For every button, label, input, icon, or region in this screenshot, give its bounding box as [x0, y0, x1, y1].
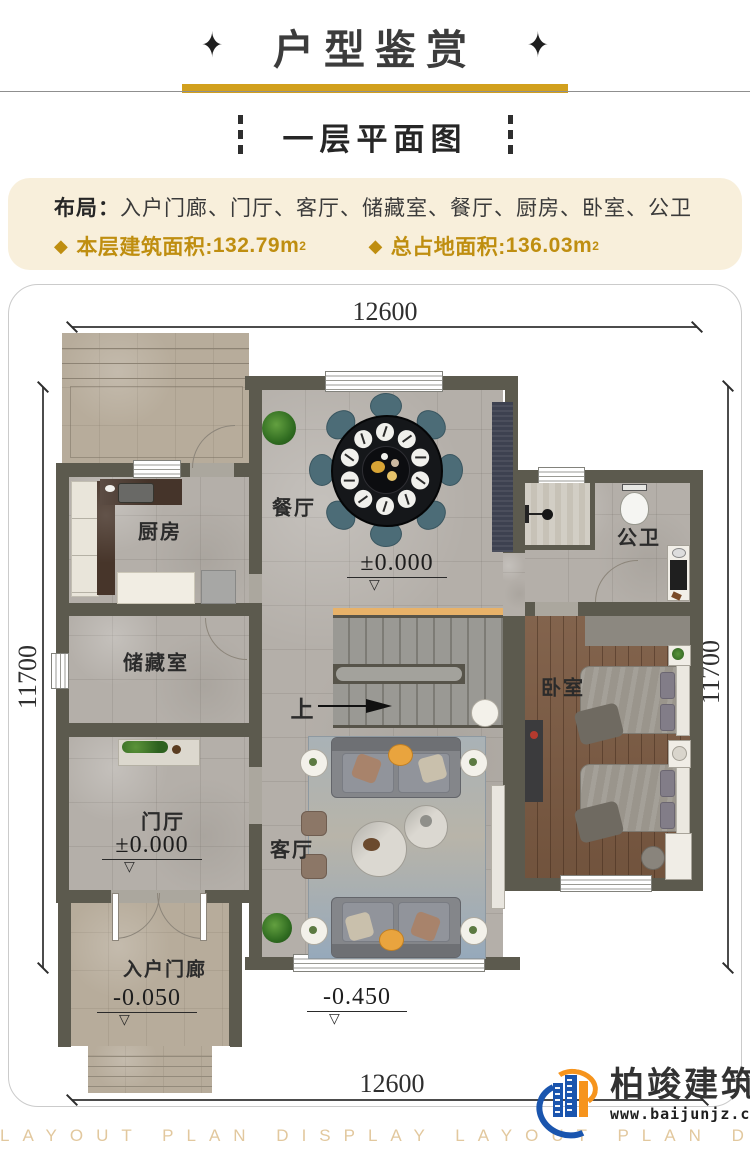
room-label-kitchen: 厨房 — [138, 516, 182, 545]
stairs-arrow-head — [366, 699, 392, 713]
layout-label: 布局： — [54, 197, 120, 220]
living-tv-cabinet — [491, 785, 505, 909]
toilet-tank — [622, 484, 647, 491]
stairs-up-label: 上 — [291, 690, 316, 724]
bed-headboard — [676, 762, 690, 834]
plate — [376, 497, 394, 515]
diamond-icon: ◆ — [54, 236, 68, 257]
brand-logo-icon — [536, 1068, 602, 1130]
elevation-value: ±0.000 — [102, 833, 202, 857]
dining-window — [325, 371, 443, 392]
storage-window — [51, 653, 69, 689]
elevation-value: ±0.000 — [347, 551, 447, 575]
room-label-bath: 公卫 — [617, 522, 661, 551]
elevation-value: -0.450 — [307, 985, 407, 1009]
floor-area-label: 本层建筑面积: — [76, 231, 213, 261]
cabinet-decor — [530, 731, 538, 739]
logo-building — [579, 1081, 588, 1117]
dim-line-left — [42, 387, 44, 968]
porch-wall — [58, 903, 71, 1023]
nightstand-plant — [672, 648, 684, 660]
step-line — [88, 1066, 212, 1067]
bath-window — [538, 467, 585, 484]
room-label-storage: 储藏室 — [123, 647, 189, 676]
dish — [381, 453, 388, 460]
dim-bottom: 12600 — [360, 1069, 425, 1099]
layout-info-box: 布局：入户门廊、门厅、客厅、储藏室、餐厅、厨房、卧室、公卫 ◆ 本层建筑面积:1… — [8, 178, 742, 270]
brand-name: 柏竣建筑 — [610, 1068, 750, 1102]
bed-headboard — [676, 664, 690, 736]
subtitle-dash-left — [238, 115, 243, 159]
porch-wall — [229, 903, 242, 1023]
step-line — [88, 1076, 212, 1077]
dining-feature-wall — [492, 402, 513, 552]
kitchen-sink — [118, 483, 154, 503]
wall — [249, 376, 262, 970]
nightstand-decor — [672, 746, 687, 761]
room-label-dining: 餐厅 — [272, 492, 316, 521]
ottoman — [301, 811, 327, 836]
wall — [56, 890, 111, 903]
layout-line: 布局：入户门廊、门厅、客厅、储藏室、餐厅、厨房、卧室、公卫 — [54, 192, 742, 222]
plant — [262, 913, 292, 943]
dim-left: 11700 — [13, 645, 43, 709]
wall — [56, 723, 262, 737]
dish — [371, 461, 385, 473]
stair-landing-strip — [333, 608, 503, 615]
brand-logo: 柏竣建筑 www.baijunjz.com — [536, 1068, 750, 1130]
room-label-foyer: 门厅 — [141, 806, 185, 835]
elevation-triangle-icon: ▽ — [307, 1012, 407, 1027]
kitchen-cabinets — [71, 481, 99, 597]
side-table — [460, 749, 488, 777]
bed — [580, 664, 690, 736]
bed-pillow — [660, 802, 675, 829]
sparkle-icon: ✦ — [201, 26, 223, 67]
elevation-outside: -0.450 ▽ — [307, 985, 407, 1028]
door-threshold — [249, 767, 262, 824]
tea-table — [471, 699, 499, 727]
coffee-table — [351, 821, 407, 877]
dim-line-right — [727, 386, 729, 968]
page-header: ✦ 户型鉴赏 ✦ — [0, 16, 750, 76]
shower-valve — [525, 505, 529, 523]
elevation-triangle-icon: ▽ — [347, 578, 447, 593]
room-label-living: 客厅 — [270, 834, 314, 863]
bed-pillow — [660, 672, 675, 699]
table-decor — [420, 815, 432, 827]
desk-chair — [641, 846, 665, 870]
sofa — [331, 897, 461, 958]
shower-head — [542, 509, 553, 520]
elevation-porch: -0.050 ▽ — [97, 986, 197, 1029]
entry-door-leaf — [112, 893, 119, 941]
bed — [580, 762, 690, 834]
vanity-sink — [672, 548, 686, 558]
toilet — [620, 492, 649, 525]
diamond-icon: ◆ — [368, 236, 382, 257]
shower-cubicle — [525, 483, 595, 550]
logo-building — [553, 1083, 563, 1117]
bed-pillow — [660, 770, 675, 797]
subtitle-row: 一层平面图 — [0, 114, 750, 159]
brand-website: www.baijunjz.com — [610, 1105, 750, 1123]
dish — [387, 471, 397, 481]
terrace-step-line — [62, 363, 249, 364]
layout-value: 入户门廊、门厅、客厅、储藏室、餐厅、厨房、卧室、公卫 — [120, 197, 692, 220]
wall — [503, 616, 525, 891]
console-plant — [122, 741, 168, 753]
kitchen-faucet — [105, 485, 115, 492]
logo-building — [565, 1075, 577, 1117]
kitchen-island — [117, 572, 195, 604]
bedroom-rug — [585, 616, 690, 646]
side-table — [300, 917, 328, 945]
bedroom-desk — [665, 833, 692, 880]
side-table — [300, 749, 328, 777]
wall — [503, 602, 703, 616]
fridge — [201, 570, 236, 604]
corridor-floor — [503, 553, 525, 616]
terrace-step-line — [62, 348, 249, 349]
page-title: 户型鉴赏 — [273, 16, 477, 76]
total-area-sup: 2 — [592, 239, 599, 253]
total-area-label: 总占地面积: — [391, 231, 506, 261]
page: ✦ 户型鉴赏 ✦ 一层平面图 布局：入户门廊、门厅、客厅、储藏室、餐厅、厨房、卧… — [0, 0, 750, 1154]
plant — [262, 411, 296, 445]
brand-text-block: 柏竣建筑 www.baijunjz.com — [610, 1068, 750, 1130]
step-line — [88, 1056, 212, 1057]
bed-pillow — [660, 704, 675, 731]
sparkle-icon: ✦ — [527, 26, 549, 67]
elevation-value: -0.050 — [97, 986, 197, 1010]
wall — [690, 470, 703, 891]
stairs-arrow-line — [318, 705, 368, 707]
total-area-stat: ◆ 总占地面积:136.03m2 — [368, 231, 599, 261]
dim-line-top — [72, 326, 697, 328]
subtitle-dash-right — [508, 115, 513, 159]
coffee-table — [404, 805, 448, 849]
console-item — [172, 745, 181, 754]
dish — [391, 459, 399, 467]
stair-handrail-top — [336, 667, 462, 681]
kitchen-window — [133, 460, 181, 478]
side-table — [460, 917, 488, 945]
plate — [376, 423, 394, 441]
sofa-pillow-orange — [388, 744, 413, 766]
porch-step-side — [212, 1046, 230, 1093]
step-line — [88, 1086, 212, 1087]
wall — [505, 470, 703, 483]
terrace-step-line — [62, 378, 249, 379]
floor-area-value: 132.79m — [213, 234, 299, 258]
table-decor — [363, 838, 380, 851]
porch-step-side — [71, 1046, 88, 1093]
dim-top: 12600 — [353, 297, 418, 327]
header-divider-line — [0, 91, 750, 92]
floor-area-sup: 2 — [299, 239, 306, 253]
total-area-value: 136.03m — [506, 234, 592, 258]
elevation-triangle-icon: ▽ — [97, 1013, 197, 1028]
sofa-pillow-orange — [379, 929, 404, 951]
room-label-porch: 入户门廊 — [123, 955, 207, 982]
bedroom-window — [560, 875, 652, 892]
door-threshold — [249, 574, 262, 603]
elevation-foyer: ±0.000 ▽ — [102, 833, 202, 876]
room-label-bedroom: 卧室 — [541, 672, 585, 701]
bedroom-door-threshold — [535, 602, 578, 616]
sofa — [331, 737, 461, 798]
elevation-dining: ±0.000 ▽ — [347, 551, 447, 594]
wall — [56, 603, 262, 616]
entry-door-leaf — [200, 893, 207, 941]
floor-subtitle: 一层平面图 — [283, 114, 468, 159]
area-stats-line: ◆ 本层建筑面积:132.79m2 ◆ 总占地面积:136.03m2 — [54, 231, 742, 261]
elevation-triangle-icon: ▽ — [102, 860, 202, 875]
vanity-counter — [670, 560, 687, 590]
